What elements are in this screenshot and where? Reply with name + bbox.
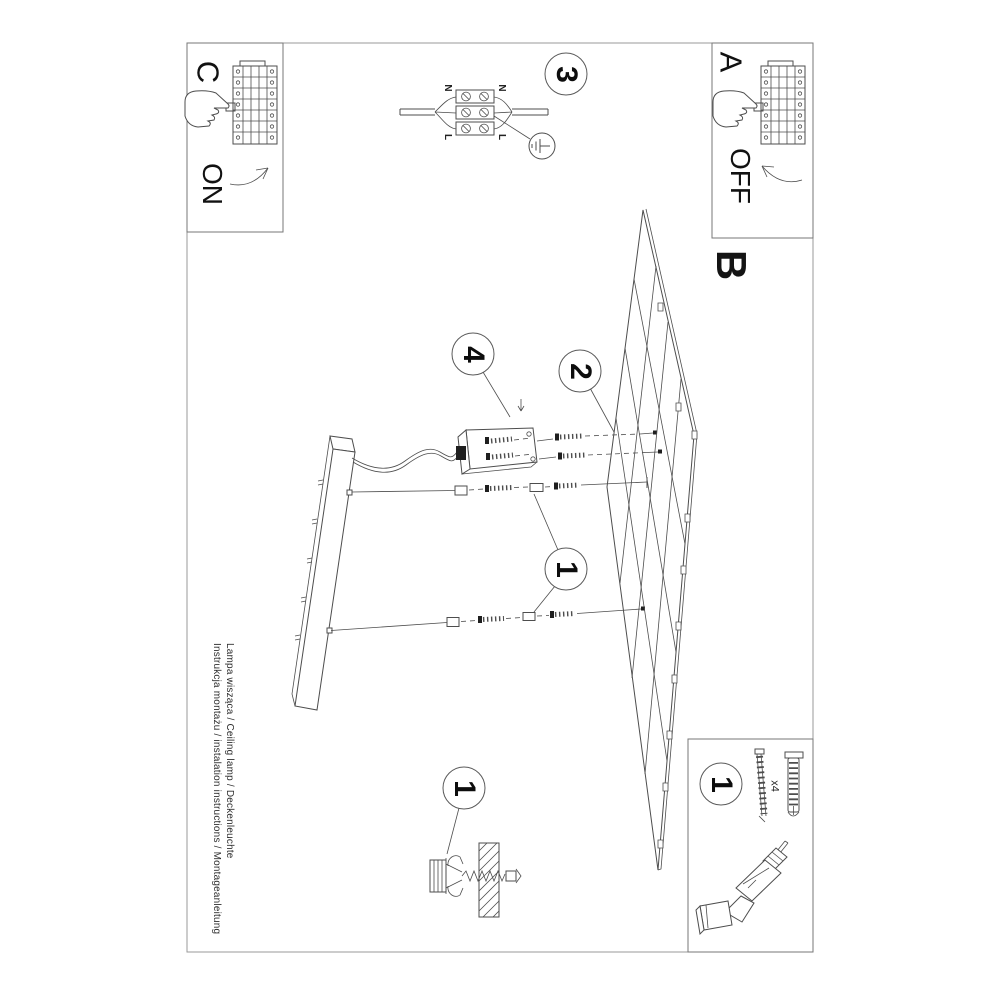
- live-label-right: L: [496, 134, 506, 140]
- step-a-label: A: [716, 52, 747, 73]
- ceiling-grid-illustration: [607, 209, 697, 870]
- neutral-label-right: N: [496, 84, 506, 91]
- instruction-title-line: Instrukcja montażu / instalation instruc…: [210, 643, 223, 934]
- off-caption: OFF: [726, 148, 754, 204]
- wiring-terminal-diagram: [400, 90, 555, 159]
- insert-arrow-icon: [518, 399, 524, 411]
- lamp-bar-illustration: [292, 436, 355, 710]
- off-arrow-icon: [762, 166, 802, 182]
- step-c-label: C: [193, 61, 224, 83]
- neutral-label-left: N: [442, 84, 452, 91]
- step-b-label: B: [710, 250, 752, 280]
- callout-1-number: 1: [704, 776, 738, 793]
- page-frame: [187, 43, 813, 952]
- product-name-line: Lampa wisząca / Ceiling lamp / Deckenleu…: [223, 643, 236, 934]
- anchor-cross-section-illustration: [430, 843, 521, 917]
- ground-symbol-icon: [529, 133, 555, 159]
- callout-1-badge-mid: 1: [545, 548, 588, 591]
- wall-plug-icon: [785, 752, 803, 816]
- line-art-layer: [0, 0, 1000, 1000]
- fastener-row-3: [352, 477, 647, 495]
- on-caption: ON: [198, 163, 226, 205]
- callout-4-number: 4: [456, 346, 490, 363]
- on-arrow-icon: [230, 168, 268, 185]
- driver-box-illustration: [456, 399, 537, 474]
- callout-1-badge-tools: 1: [700, 763, 743, 806]
- quantity-note: x4: [769, 780, 780, 792]
- callout-4-badge: 4: [452, 333, 495, 376]
- drill-icon: [696, 841, 788, 934]
- fastener-row-4: [331, 607, 645, 631]
- assembly-diagram: [292, 209, 697, 870]
- callout-3-number: 3: [549, 66, 583, 83]
- callout-2-badge: 2: [559, 350, 602, 393]
- power-cable: [352, 449, 458, 472]
- fuse-box-off-icon: [713, 61, 805, 144]
- screw-icon: [755, 749, 766, 822]
- callout-3-badge: 3: [545, 53, 588, 96]
- instruction-sheet: C ON A OFF B N N L L 3 4 2 1 1 1 x4 Lamp…: [0, 0, 1000, 1000]
- callout-2-number: 2: [563, 363, 597, 380]
- live-label-left: L: [442, 134, 452, 140]
- callout-1-number: 1: [549, 561, 583, 578]
- instruction-footer: Lampa wisząca / Ceiling lamp / Deckenleu…: [210, 643, 236, 934]
- callout-1-badge-anchor: 1: [443, 767, 486, 810]
- callout-1-number: 1: [447, 780, 481, 797]
